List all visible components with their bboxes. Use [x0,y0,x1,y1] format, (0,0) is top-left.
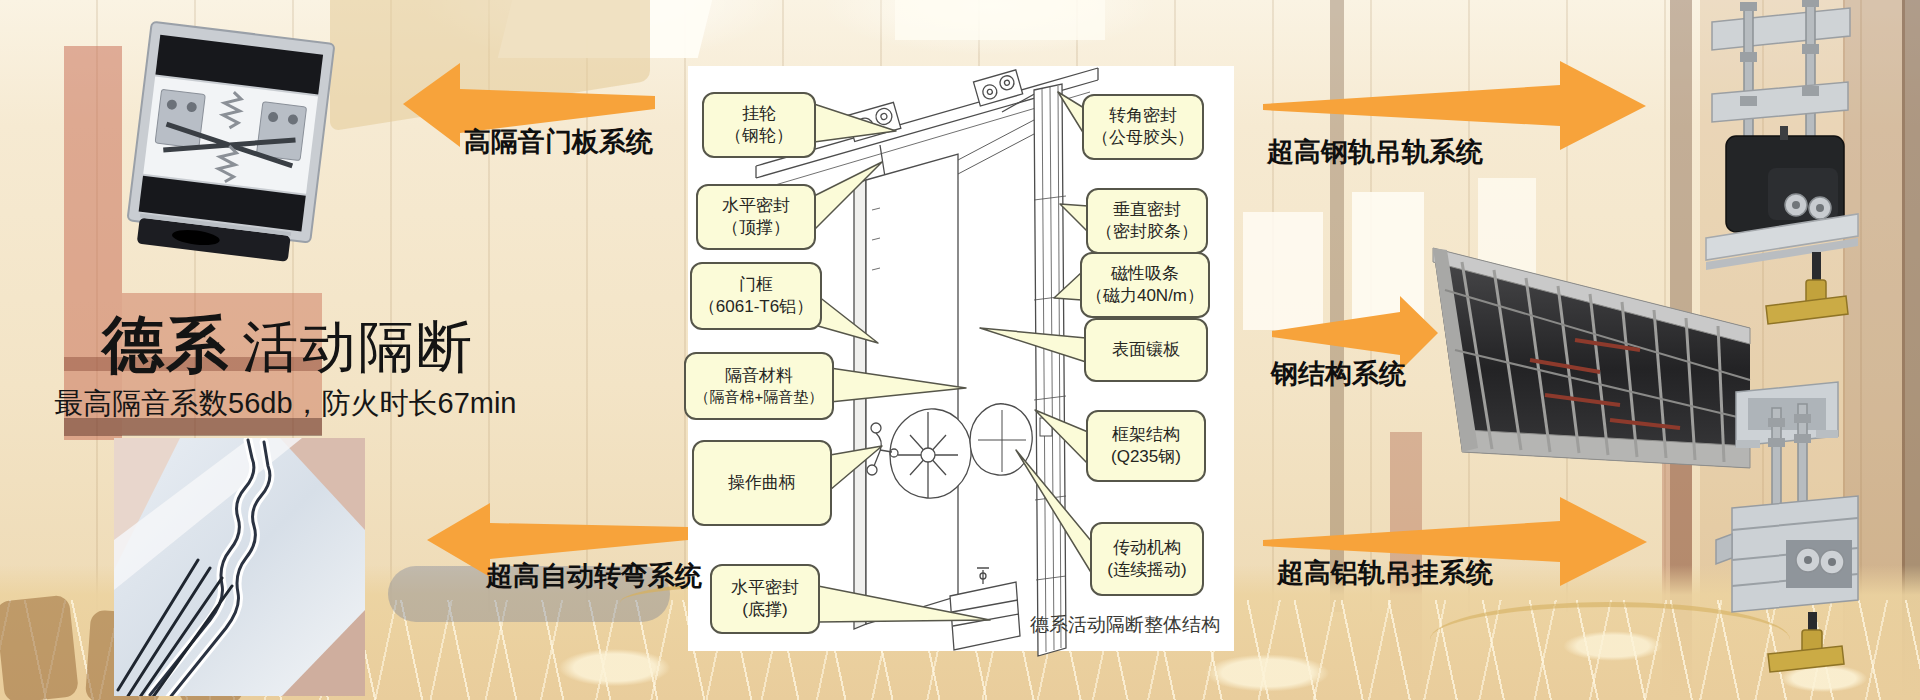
callout-magnetic-strip: 磁性吸条（磁力40N/m） [1080,252,1210,318]
title-product: 活动隔断 [242,310,474,386]
background-door-opening [1352,192,1424,330]
background-carpet-gold-arc [1430,602,1790,677]
callout-hanging-wheel: 挂轮（钢轮） [702,92,816,158]
background-chair [85,610,165,700]
label-steel-rail-system: 超高钢轨吊轨系统 [1267,134,1483,170]
background-chair [0,594,79,700]
callout-frame-structure: 框架结构(Q235钢) [1086,410,1206,482]
callout-door-frame: 门框（6061-T6铝） [690,262,822,330]
callout-surface-panel: 表面镶板 [1084,318,1208,382]
callout-horizontal-seal-top: 水平密封（顶撑） [696,184,816,250]
label-door-panel-system: 高隔音门板系统 [464,124,653,160]
page-title: 德系 活动隔断 [102,303,474,387]
callout-transmission-mechanism: 传动机构(连续摇动) [1090,522,1204,596]
label-steel-structure-system: 钢结构系统 [1271,356,1406,392]
diagram-caption: 德系活动隔断整体结构 [1012,612,1238,638]
background-door-opening [1243,212,1323,330]
callout-horizontal-seal-bottom: 水平密封(底撑) [710,564,820,634]
background-chair [176,626,244,700]
background-skylight [895,0,1105,40]
callout-corner-seal: 转角密封（公母胶头） [1082,94,1204,160]
callout-sound-insulation-material: 隔音材料（隔音棉+隔音垫） [684,352,834,420]
callout-operating-crank: 操作曲柄 [692,440,832,526]
label-aluminum-rail-system: 超高铝轨吊挂系统 [1277,555,1493,591]
label-auto-turning-system: 超高自动转弯系统 [486,558,702,594]
background-dark-strip [1330,0,1344,612]
page-subtitle: 最高隔音系数56db，防火时长67min [54,384,517,424]
callout-vertical-seal: 垂直密封（密封胶条） [1086,188,1208,254]
background-door-opening [1478,178,1536,310]
title-brand: 德系 [102,303,230,387]
slide-canvas: 德系 活动隔断 最高隔音系数56db，防火时长67min 高隔音门板系统 超高自… [0,0,1920,700]
